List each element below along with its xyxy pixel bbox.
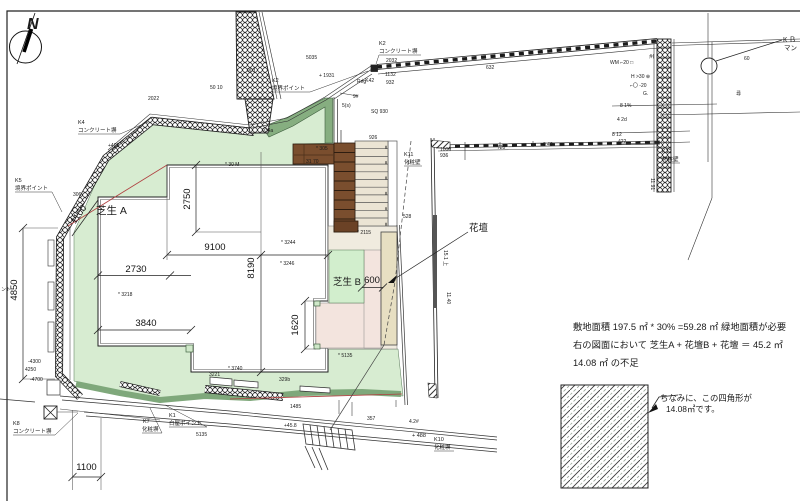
svg-text:G.: G. <box>643 91 648 97</box>
svg-text:4 2d: 4 2d <box>617 117 627 123</box>
svg-text:* 305: * 305 <box>316 146 328 152</box>
svg-text:* 2115: * 2115 <box>357 230 371 236</box>
svg-text:N: N <box>27 16 39 33</box>
svg-text:* 3218: * 3218 <box>118 292 133 298</box>
svg-text:化粧塀: 化粧塀 <box>434 443 451 451</box>
svg-text:720: 720 <box>497 145 506 151</box>
svg-text:15.1 上: 15.1 上 <box>442 250 449 266</box>
svg-text:白屋ポイント: 白屋ポイント <box>169 419 202 427</box>
svg-text:境界ポイント: 境界ポイント <box>272 84 305 92</box>
svg-text:9#: 9# <box>353 94 359 100</box>
svg-text:8 12: 8 12 <box>612 132 622 138</box>
svg-text:+ 1931: + 1931 <box>319 73 335 79</box>
svg-text:マン: マン <box>784 44 797 52</box>
svg-text:600: 600 <box>364 275 380 286</box>
svg-text:花壇: 花壇 <box>469 222 489 234</box>
svg-text:50 10: 50 10 <box>210 85 223 91</box>
svg-text:化粧壁: 化粧壁 <box>662 155 679 163</box>
svg-text:5135: 5135 <box>196 432 207 438</box>
svg-text:528: 528 <box>403 214 412 220</box>
svg-text:* 3246: * 3246 <box>280 261 295 267</box>
svg-text:422: 422 <box>618 139 627 145</box>
svg-text:* 5135: * 5135 <box>338 353 353 359</box>
svg-text:1132: 1132 <box>385 72 396 78</box>
svg-text:* 3740: * 3740 <box>228 366 243 372</box>
svg-text:コンクリート塀: コンクリート塀 <box>379 47 418 55</box>
svg-text:* 3244: * 3244 <box>281 240 296 246</box>
svg-text:11.40: 11.40 <box>445 292 451 304</box>
svg-text:К Ｂ: К Ｂ <box>783 36 796 44</box>
svg-text:31 70: 31 70 <box>306 159 319 165</box>
svg-text:1100: 1100 <box>76 462 96 473</box>
svg-text:4.2#: 4.2# <box>409 419 419 425</box>
svg-text:芝生 A: 芝生 A <box>96 204 127 217</box>
svg-text:K12: K12 <box>662 149 672 155</box>
svg-text:-4700: -4700 <box>30 377 43 383</box>
svg-text:K11: K11 <box>404 152 413 158</box>
svg-text:K8: K8 <box>13 421 20 427</box>
svg-text:* 30 M: * 30 M <box>225 162 239 168</box>
svg-text:2730: 2730 <box>125 264 146 275</box>
svg-text:306: 306 <box>73 192 82 198</box>
svg-text:11.91: 11.91 <box>649 178 655 190</box>
svg-text:州: 州 <box>649 54 654 60</box>
svg-text:右の図面において 芝生A + 花壇B + 花壇 ＝ 45.: 右の図面において 芝生A + 花壇B + 花壇 ＝ 45.2 ㎡ <box>573 339 784 350</box>
svg-text:ちなみに、この四角形が: ちなみに、この四角形が <box>660 393 752 403</box>
svg-text:K10: K10 <box>434 437 444 443</box>
svg-text:1620: 1620 <box>290 314 301 335</box>
svg-text:K4: K4 <box>78 120 85 126</box>
svg-text:+45.8: +45.8 <box>284 423 297 429</box>
svg-text:3221: 3221 <box>209 372 220 378</box>
svg-text:敷地面積 197.5 ㎡ * 30% =59.28 ㎡ 緑地: 敷地面積 197.5 ㎡ * 30% =59.28 ㎡ 緑地面積が必要 <box>573 321 786 332</box>
svg-text:+ 488: + 488 <box>412 433 426 439</box>
svg-text:5(s): 5(s) <box>342 103 351 109</box>
svg-text:4250: 4250 <box>25 367 36 373</box>
svg-text:境界ポイント: 境界ポイント <box>15 184 48 192</box>
svg-text:3840: 3840 <box>135 318 156 329</box>
svg-text:K7: K7 <box>143 419 150 425</box>
svg-text:コンクリート塀: コンクリート塀 <box>13 427 52 435</box>
svg-text:8 1%: 8 1% <box>620 103 632 109</box>
svg-text:9100: 9100 <box>204 242 225 253</box>
svg-text:化粧塀: 化粧塀 <box>142 425 159 433</box>
svg-text:2032: 2032 <box>386 58 397 64</box>
svg-text:2750: 2750 <box>182 188 193 209</box>
svg-text:化粧壁: 化粧壁 <box>404 158 421 166</box>
svg-text:K5: K5 <box>15 178 22 184</box>
svg-text:+ K42: + K42 <box>361 78 374 84</box>
svg-text:357: 357 <box>367 416 376 422</box>
svg-text:⌐〇 -20: ⌐〇 -20 <box>630 83 647 89</box>
svg-text:8190: 8190 <box>246 257 257 278</box>
svg-text:K2: K2 <box>272 78 279 84</box>
svg-text:2022: 2022 <box>148 96 159 102</box>
svg-text:WM ⌐20 □: WM ⌐20 □ <box>610 60 633 66</box>
svg-text:尋: 尋 <box>736 91 741 97</box>
svg-text:14.08 ㎡ の不足: 14.08 ㎡ の不足 <box>573 358 639 368</box>
svg-text:芝生 B: 芝生 B <box>333 276 361 288</box>
svg-text:632: 632 <box>486 65 495 71</box>
svg-text:+403: +403 <box>108 143 119 149</box>
svg-text:932: 932 <box>386 80 395 86</box>
svg-text:934a: 934a <box>262 128 273 134</box>
svg-text:0 40: 0 40 <box>543 142 553 148</box>
svg-text:329b: 329b <box>279 377 290 383</box>
svg-text:コンクリート塀: コンクリート塀 <box>78 126 117 134</box>
svg-text:936: 936 <box>440 153 449 159</box>
svg-text:1485: 1485 <box>290 404 301 410</box>
svg-text:60: 60 <box>744 56 750 62</box>
svg-text:H >30 ⊕: H >30 ⊕ <box>631 74 650 80</box>
svg-text:926: 926 <box>369 135 378 141</box>
svg-text:ント: ント <box>1 287 11 293</box>
svg-text:SQ 930: SQ 930 <box>371 109 388 115</box>
svg-text:-4300: -4300 <box>28 359 41 365</box>
svg-text:903: 903 <box>247 68 256 74</box>
svg-text:5035: 5035 <box>306 55 317 61</box>
svg-text:14.08㎡です。: 14.08㎡です。 <box>666 404 720 414</box>
svg-text:K1: K1 <box>169 413 176 419</box>
svg-text:K2: K2 <box>379 41 386 47</box>
